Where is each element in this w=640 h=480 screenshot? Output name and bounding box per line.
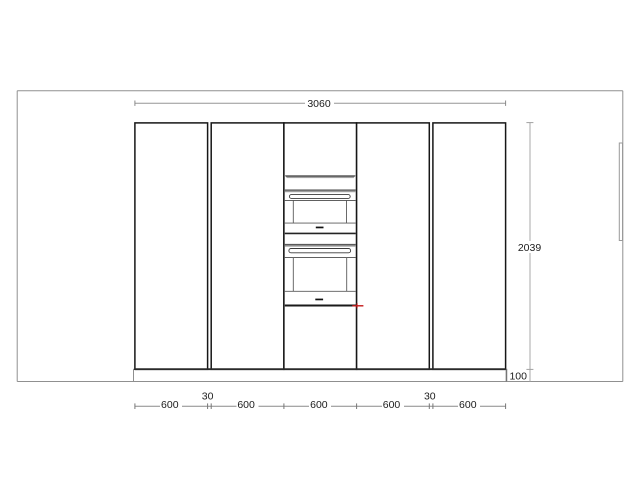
svg-text:600: 600 (383, 399, 401, 411)
svg-text:30: 30 (424, 390, 436, 402)
svg-text:100: 100 (509, 371, 527, 383)
svg-text:600: 600 (310, 399, 328, 411)
svg-text:600: 600 (161, 399, 179, 411)
svg-text:600: 600 (459, 399, 477, 411)
svg-text:600: 600 (237, 399, 255, 411)
svg-text:30: 30 (202, 390, 214, 402)
svg-text:2039: 2039 (518, 242, 542, 254)
svg-text:3060: 3060 (307, 98, 331, 110)
